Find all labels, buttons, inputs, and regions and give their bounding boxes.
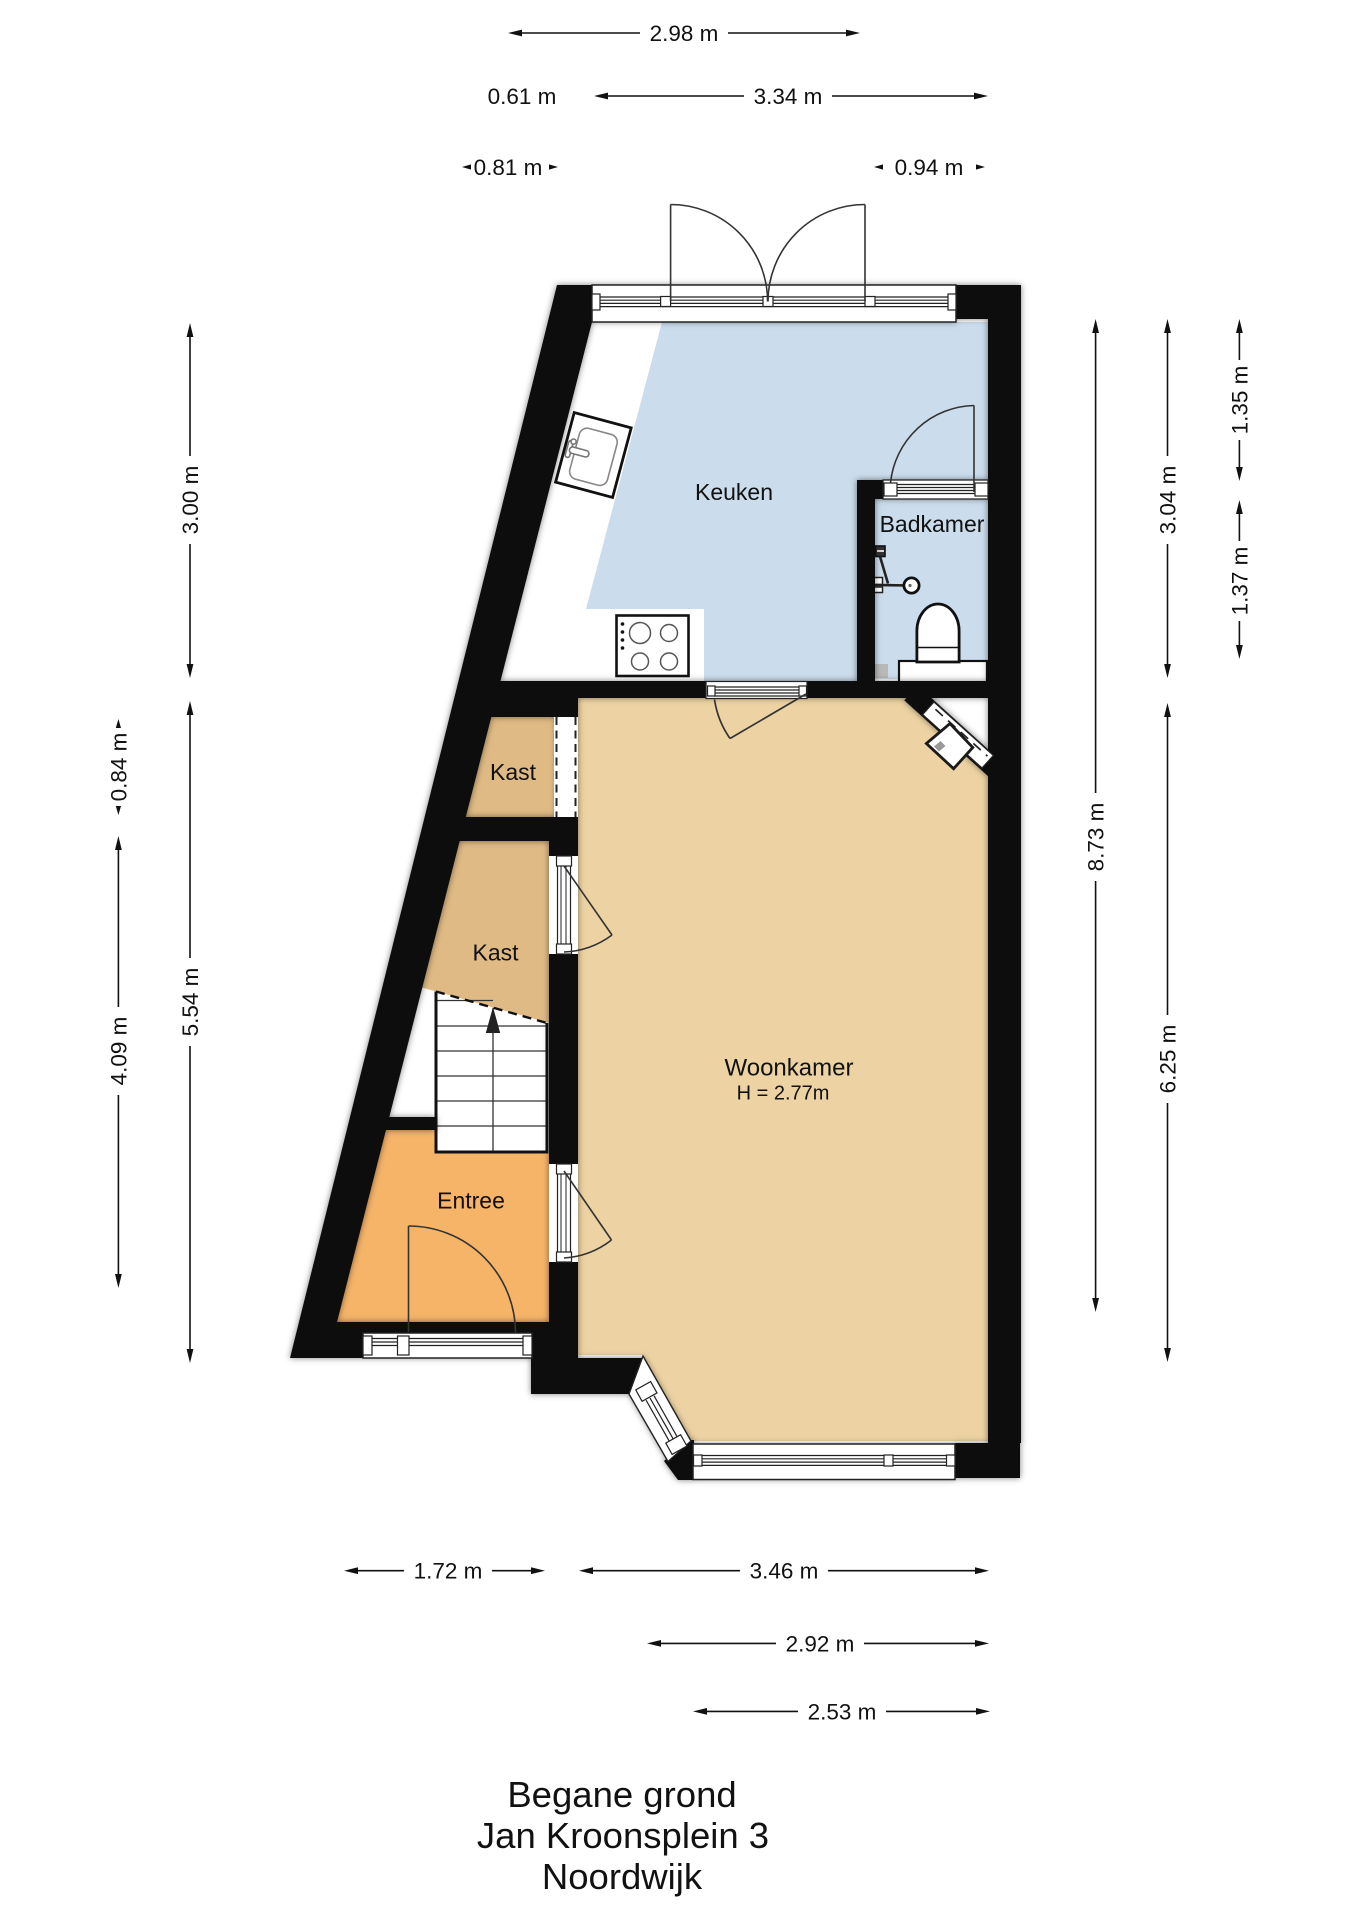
svg-text:4.09 m: 4.09 m (106, 1017, 131, 1086)
svg-text:0.81 m: 0.81 m (474, 155, 543, 180)
svg-text:8.73 m: 8.73 m (1084, 803, 1109, 872)
svg-text:1.37 m: 1.37 m (1227, 547, 1252, 616)
svg-text:Badkamer: Badkamer (880, 511, 985, 537)
svg-text:0.84 m: 0.84 m (106, 733, 131, 802)
svg-text:Woonkamer: Woonkamer (725, 1055, 854, 1082)
svg-text:2.98 m: 2.98 m (650, 21, 719, 46)
svg-text:0.94 m: 0.94 m (895, 155, 964, 180)
svg-text:3.34 m: 3.34 m (754, 84, 823, 109)
svg-text:Keuken: Keuken (695, 479, 773, 505)
svg-text:3.04 m: 3.04 m (1156, 466, 1181, 535)
svg-text:1.72 m: 1.72 m (414, 1559, 483, 1584)
svg-text:2.53 m: 2.53 m (808, 1699, 877, 1724)
svg-text:0.61 m: 0.61 m (488, 84, 557, 109)
svg-text:Entree: Entree (437, 1188, 505, 1214)
svg-text:3.46 m: 3.46 m (750, 1559, 819, 1584)
svg-text:2.92 m: 2.92 m (786, 1631, 855, 1656)
svg-text:Jan Kroonsplein 3: Jan Kroonsplein 3 (477, 1815, 769, 1856)
svg-text:Kast: Kast (472, 940, 519, 966)
svg-text:3.00 m: 3.00 m (178, 466, 203, 535)
svg-text:H = 2.77m: H = 2.77m (737, 1083, 830, 1105)
svg-text:6.25 m: 6.25 m (1156, 1025, 1181, 1094)
svg-text:1.35 m: 1.35 m (1227, 366, 1252, 435)
svg-text:Noordwijk: Noordwijk (542, 1856, 703, 1897)
svg-text:5.54 m: 5.54 m (178, 968, 203, 1037)
svg-text:Begane grond: Begane grond (507, 1774, 736, 1815)
svg-text:Kast: Kast (490, 759, 537, 785)
